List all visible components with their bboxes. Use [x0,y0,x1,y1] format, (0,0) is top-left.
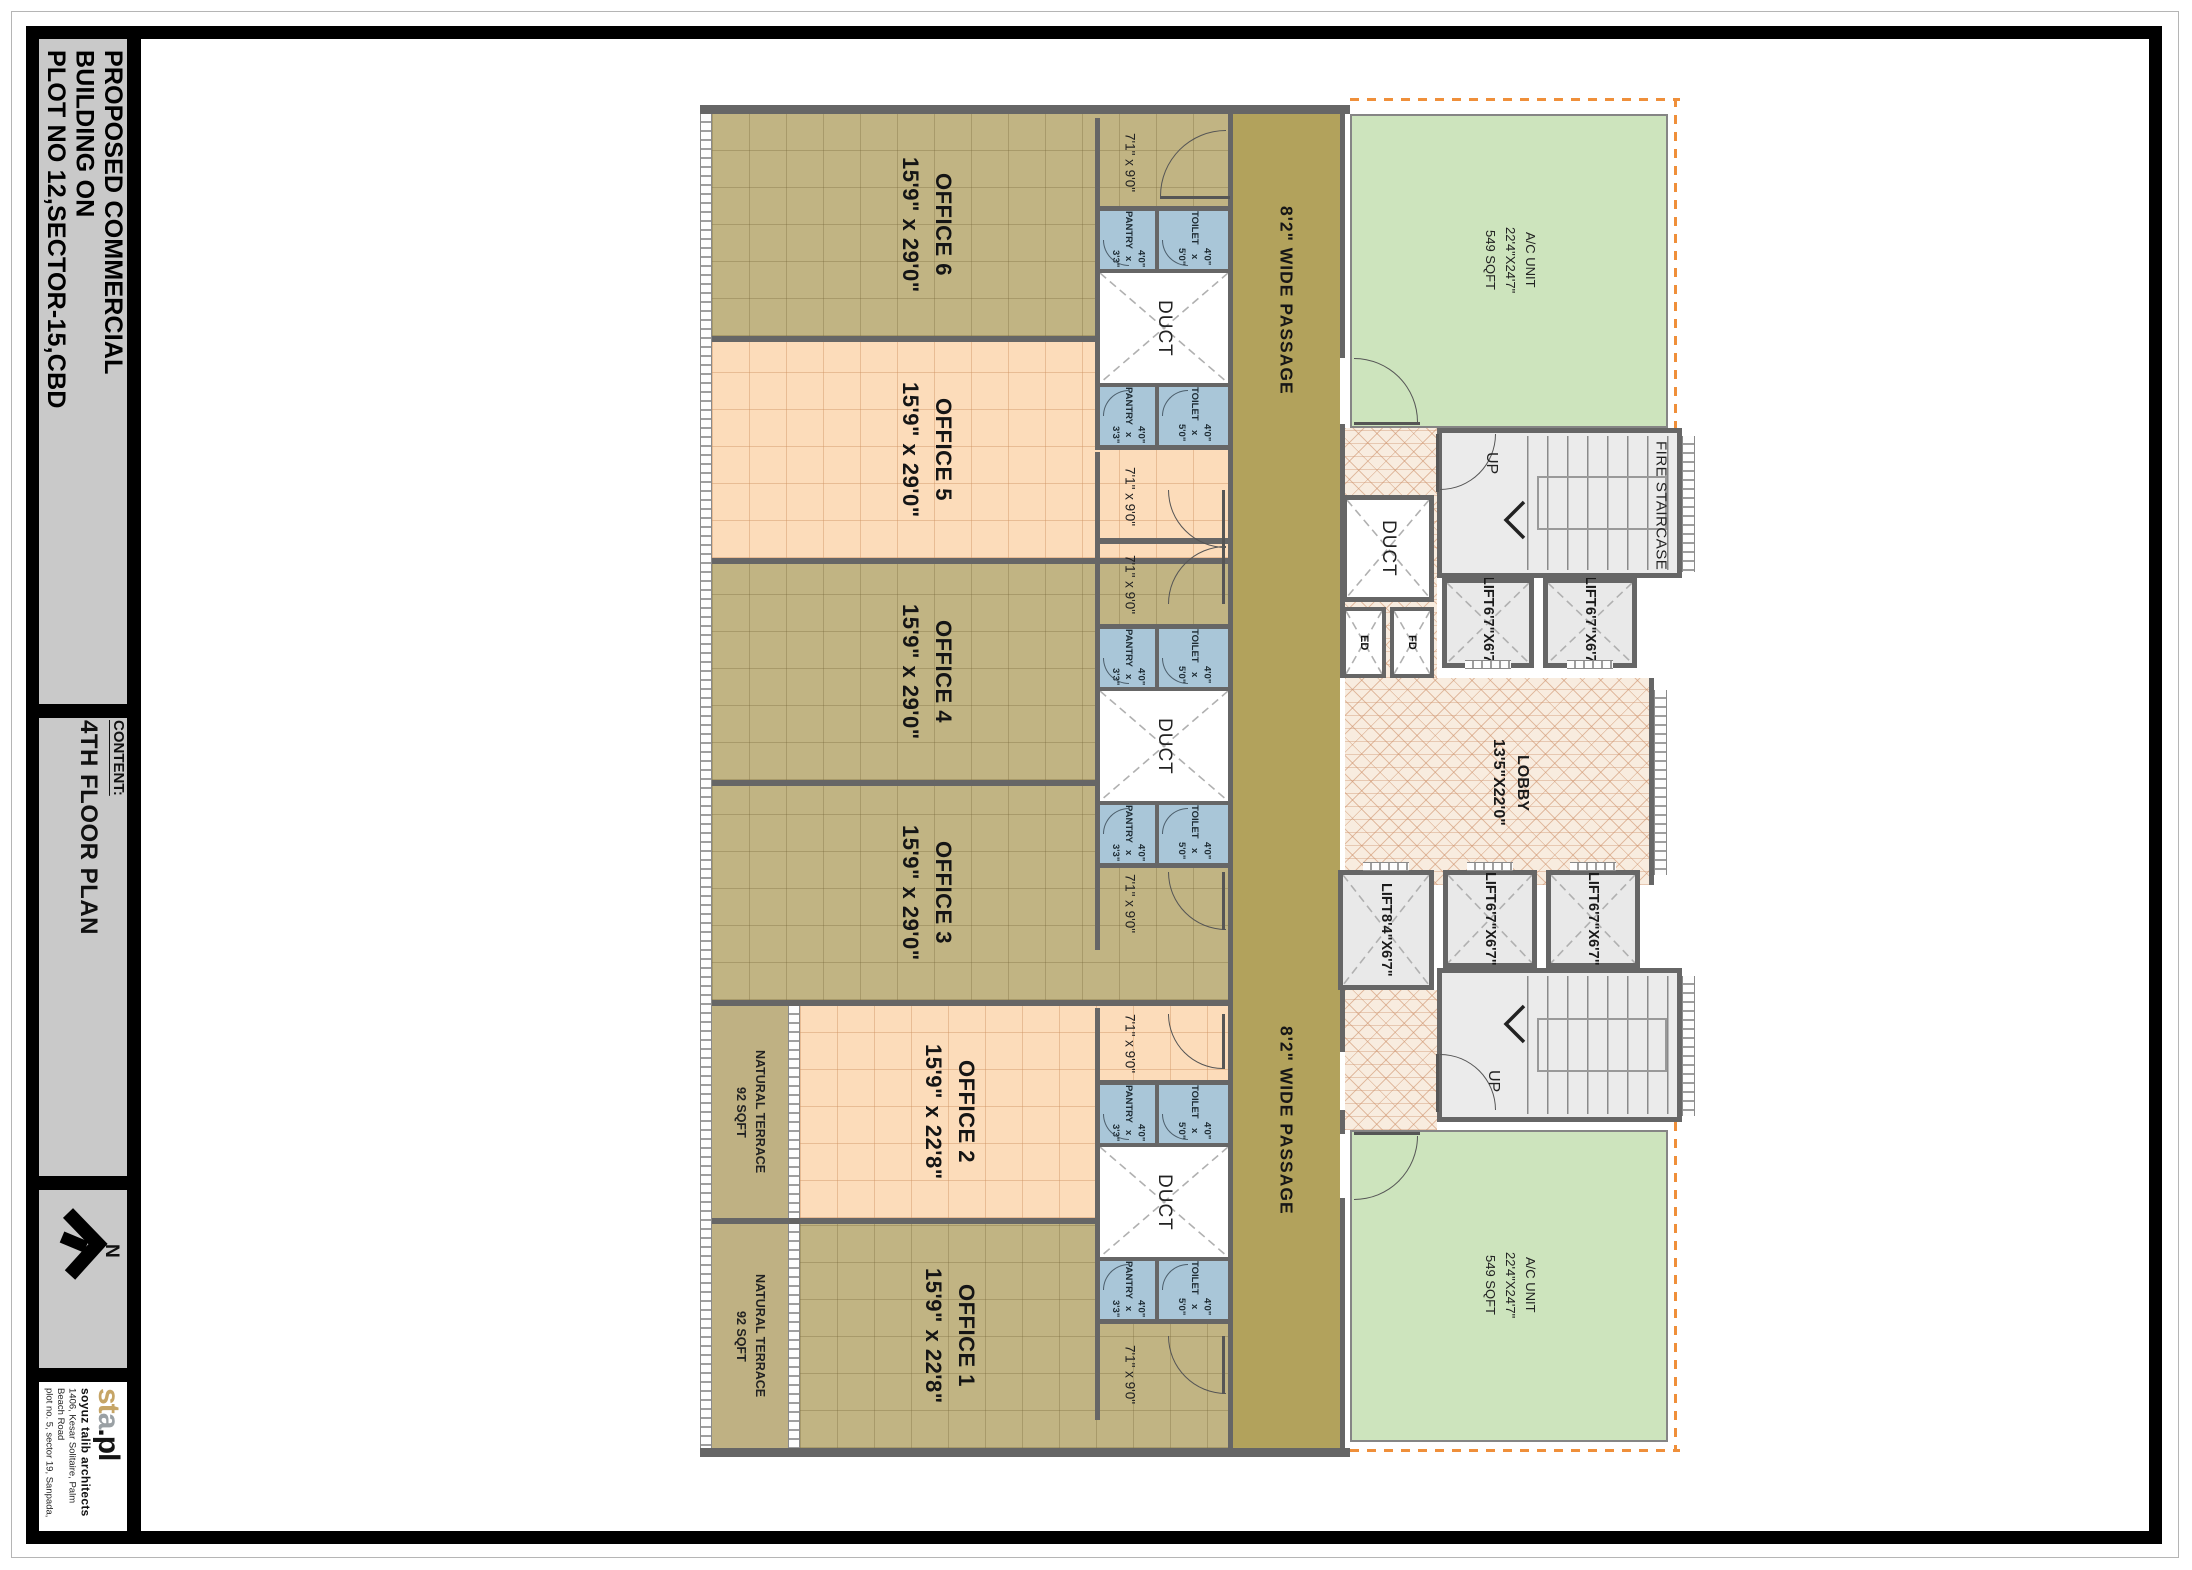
lift-label: LIFT [1580,576,1600,607]
window-terrace-2 [788,1006,800,1218]
terrace-1-label: NATURAL TERRACE92 SQFT [712,1224,788,1448]
office-size: 15'9" x 29'0" [894,157,927,293]
entry-size-label: 7'1" x 9'0" [1102,456,1158,538]
door-leaf [1354,1132,1420,1135]
office-size: 15'9" x 29'0" [894,825,927,961]
firm-logo-part2: a [92,1413,124,1429]
window-lower-stair [1682,976,1695,1116]
sanitary-module-3: PANTRY4'0" x 3'3" TOILET4'0" x 5'0" DUCT… [1095,1080,1233,1324]
firm-address-line2: plot no. 5, sector 19, Sanpada, Navi Mum… [44,1388,55,1526]
firm-logo-part3: .pl [92,1428,124,1460]
room-toilet: TOILET4'0" x 5'0" [1159,805,1228,863]
office-6-label: OFFICE 615'9" x 29'0" [712,114,1142,336]
lift-label: LIFT [1376,883,1396,914]
ac-name: A/C UNIT [1520,227,1540,293]
lift-size: 6'7"X6'7" [1583,903,1603,966]
lobby-size: 13'5"X22'0" [1486,739,1510,826]
office-name: OFFICE 6 [927,157,960,293]
door-leaf [1222,1014,1225,1069]
firm-logo-part1: st [92,1388,124,1413]
pantry-size: 4'0" x 3'3" [1108,1299,1146,1319]
office-2-label: OFFICE 215'9" x 22'8" [800,1006,1100,1218]
room-lift-2: LIFT6'7"X6'7" [1543,578,1637,668]
entry-size-label: 7'1" x 9'0" [1102,1330,1158,1420]
lift-size: 8'4"X6'7" [1376,914,1396,977]
boundary-line-top [1350,98,1680,101]
door-leaf [1436,434,1439,492]
lift-size: 6'7"X6'7" [1480,903,1500,966]
window-terrace-1 [788,1224,800,1448]
office-name: OFFICE 4 [927,604,960,740]
boundary-line-bottom [1350,1449,1680,1452]
office-3-label: OFFICE 315'9" x 29'0" [712,786,1142,1000]
lobby-label: LOBBY13'5"X22'0" [1400,695,1620,870]
office-name: OFFICE 3 [927,825,960,961]
terrace-name: NATURAL TERRACE [750,1050,769,1173]
content-panel: CONTENT: 4TH FLOOR PLAN [39,720,127,1172]
toilet-label: TOILET [1187,211,1200,245]
up-label-lower-stair: UP [1480,1056,1506,1106]
fire-staircase-label: FIRE STAIRCASE [1644,426,1678,586]
project-title: PROPOSED COMMERCIAL BUILDING ON PLOT NO … [39,50,127,710]
wall-segment [1340,1110,1345,1134]
title-block-divider [127,26,141,1544]
room-toilet: TOILET4'0" x 5'0" [1159,211,1228,269]
room-toilet: TOILET4'0" x 5'0" [1159,629,1228,687]
office-1-label: OFFICE 115'9" x 22'8" [800,1224,1100,1448]
room-toilet: TOILET4'0" x 5'0" [1159,387,1228,445]
drawing-sheet: PROPOSED COMMERCIAL BUILDING ON PLOT NO … [0,0,2192,1570]
ac-area: 549 SQFT [1480,1252,1500,1318]
door-leaf [1436,1054,1439,1112]
ac-size: 22'4"X24'7" [1500,227,1520,293]
toilet-size: 4'0" x 5'0" [1174,421,1212,445]
ac-area: 549 SQFT [1480,227,1500,293]
panel-divider [39,1176,127,1190]
toilet-label: TOILET [1187,629,1200,663]
wall-segment [1340,114,1345,358]
stair-direction-arrow-icon [1502,1002,1528,1046]
entry-size-label: 7'1" x 9'0" [1102,862,1158,946]
terrace-2-label: NATURAL TERRACE92 SQFT [712,1006,788,1218]
up-label-fire-stair: UP [1478,438,1504,488]
ac-name: A/C UNIT [1520,1252,1540,1318]
toilet-label: TOILET [1187,1085,1200,1119]
wall-bottom [700,1448,1350,1457]
window-wall-offices [700,114,712,1448]
room-toilet: TOILET4'0" x 5'0" [1159,1261,1228,1319]
room-duct-core: DUCT [1342,495,1434,602]
window-fire-stair [1682,436,1695,572]
duct-label: DUCT [1100,1147,1228,1257]
office-size: 15'9" x 22'8" [917,1044,950,1180]
content-value: 4TH FLOOR PLAN [74,720,102,1172]
room-pantry: PANTRY4'0" x 3'3" [1100,1085,1155,1143]
office-4-label: OFFICE 415'9" x 29'0" [712,564,1142,780]
door-leaf [1222,872,1225,930]
fd-label: FD [1394,611,1430,674]
toilet-label: TOILET [1187,805,1200,839]
entry-size-label: 7'1" x 9'0" [1102,546,1158,624]
office-name: OFFICE 1 [950,1268,983,1404]
door-leaf [1160,196,1230,199]
room-lift-3: LIFT8'4"X6'7" [1338,870,1434,990]
room-lift-1: LIFT6'7"X6'7" [1442,578,1534,668]
toilet-size: 4'0" x 5'0" [1174,839,1212,863]
firm-logo: sta.pl [93,1388,125,1526]
passage-label-top: 8'2" WIDE PASSAGE [1238,195,1334,405]
room-lift-4: LIFT6'7"X6'7" [1443,870,1537,968]
entry-size-label: 7'1" x 9'0" [1102,120,1158,206]
content-label: CONTENT: [110,720,127,1172]
terrace-name: NATURAL TERRACE [750,1274,769,1397]
firm-name: soyuz talib architects [78,1388,93,1526]
window-lobby [1654,690,1667,875]
room-duct: DUCT [1100,1147,1228,1257]
office-size: 15'9" x 29'0" [894,382,927,518]
lift-label: LIFT [1480,872,1500,903]
lobby-name: LOBBY [1510,739,1534,826]
lift-label: LIFT [1478,576,1498,607]
terrace-size: 92 SQFT [731,1050,750,1173]
door-leaf [1222,490,1225,548]
office-name: OFFICE 2 [950,1044,983,1180]
boundary-line-right-lower [1674,1122,1677,1452]
lift-lobby-lower [1345,990,1437,1130]
office-size: 15'9" x 29'0" [894,604,927,740]
duct-label: DUCT [1347,500,1429,597]
north-label: N [100,1244,122,1258]
firm-address-line1: 1406, Kesar Solitaire, Palm Beach Road [55,1388,78,1526]
toilet-label: TOILET [1187,387,1200,421]
room-lift-5: LIFT6'7"X6'7" [1546,870,1640,968]
ac-unit-top-label: A/C UNIT22'4"X24'7"549 SQFT [1360,140,1660,380]
office-5-label: OFFICE 515'9" x 29'0" [712,342,1142,558]
lift-label: LIFT [1583,872,1603,903]
toilet-size: 4'0" x 5'0" [1174,1295,1212,1319]
wall-top [700,105,1350,114]
room-ed: ED [1342,607,1386,678]
door-leaf [1354,422,1420,425]
office-size: 15'9" x 22'8" [917,1268,950,1404]
room-pantry: PANTRY4'0" x 3'3" [1100,1261,1155,1319]
passage-label-bottom: 8'2" WIDE PASSAGE [1238,1015,1334,1225]
ac-unit-bottom-label: A/C UNIT22'4"X24'7"549 SQFT [1360,1160,1660,1410]
office-name: OFFICE 5 [927,382,960,518]
lift-door [1465,660,1511,669]
panel-divider [39,1368,127,1382]
project-title-line: PROPOSED COMMERCIAL [99,50,128,710]
door-leaf [1222,1336,1225,1394]
terrace-size: 92 SQFT [731,1274,750,1397]
wall-segment [1340,1198,1345,1448]
toilet-label: TOILET [1187,1261,1200,1295]
architect-logo-block: sta.pl soyuz talib architects 1406, Kesa… [44,1388,124,1526]
lift-door [1567,660,1613,669]
room-fd: FD [1390,607,1434,678]
project-title-line: BUILDING ON [70,50,99,710]
door-leaf [1222,546,1225,604]
room-toilet: TOILET4'0" x 5'0" [1159,1085,1228,1143]
entry-size-label: 7'1" x 9'0" [1102,1008,1158,1080]
ed-label: ED [1346,611,1382,674]
boundary-line-right-upper [1674,98,1677,430]
stair-direction-arrow-icon [1502,498,1528,542]
project-title-line: PLOT NO 12,SECTOR-15,CBD [42,50,71,710]
stair-rail [1537,1018,1667,1073]
ac-size: 22'4"X24'7" [1500,1252,1520,1318]
